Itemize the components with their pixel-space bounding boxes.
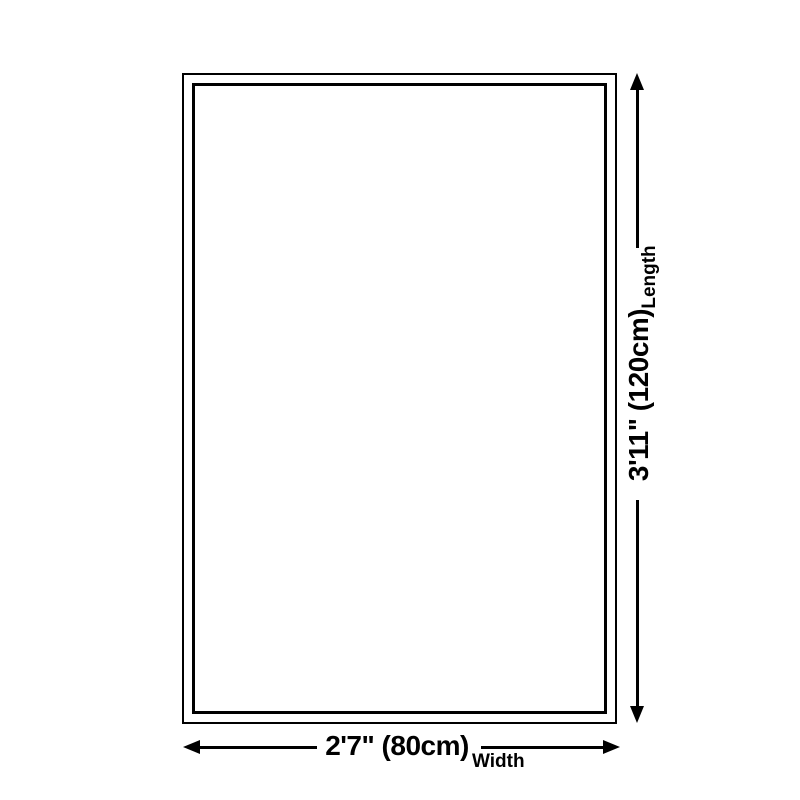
width-line-right-segment bbox=[481, 746, 603, 749]
rug-inner-outline bbox=[192, 83, 607, 714]
length-line-bottom-segment bbox=[636, 500, 639, 706]
width-line-left-segment bbox=[200, 746, 317, 749]
size-diagram: Length 3'11" (120cm) 2'7" (80cm) Width bbox=[0, 0, 800, 800]
length-unit-label: Length bbox=[639, 245, 661, 308]
length-value: 3'11" (120cm) bbox=[623, 309, 655, 481]
arrow-down-icon bbox=[630, 706, 644, 723]
arrow-left-icon bbox=[183, 740, 200, 754]
width-unit-label: Width bbox=[472, 751, 525, 773]
width-value: 2'7" (80cm) bbox=[325, 730, 469, 762]
length-line-top-segment bbox=[636, 88, 639, 248]
rug-outer-outline bbox=[182, 73, 617, 724]
arrow-right-icon bbox=[603, 740, 620, 754]
